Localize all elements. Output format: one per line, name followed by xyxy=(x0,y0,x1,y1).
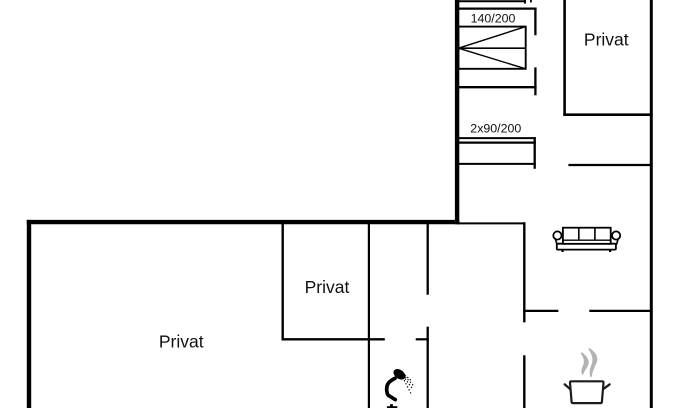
svg-text:Privat: Privat xyxy=(305,277,350,297)
svg-text:140/200: 140/200 xyxy=(471,12,516,26)
svg-text:Privat: Privat xyxy=(584,29,629,49)
svg-text:Privat: Privat xyxy=(159,332,204,352)
svg-text:2x90/200: 2x90/200 xyxy=(470,121,521,135)
